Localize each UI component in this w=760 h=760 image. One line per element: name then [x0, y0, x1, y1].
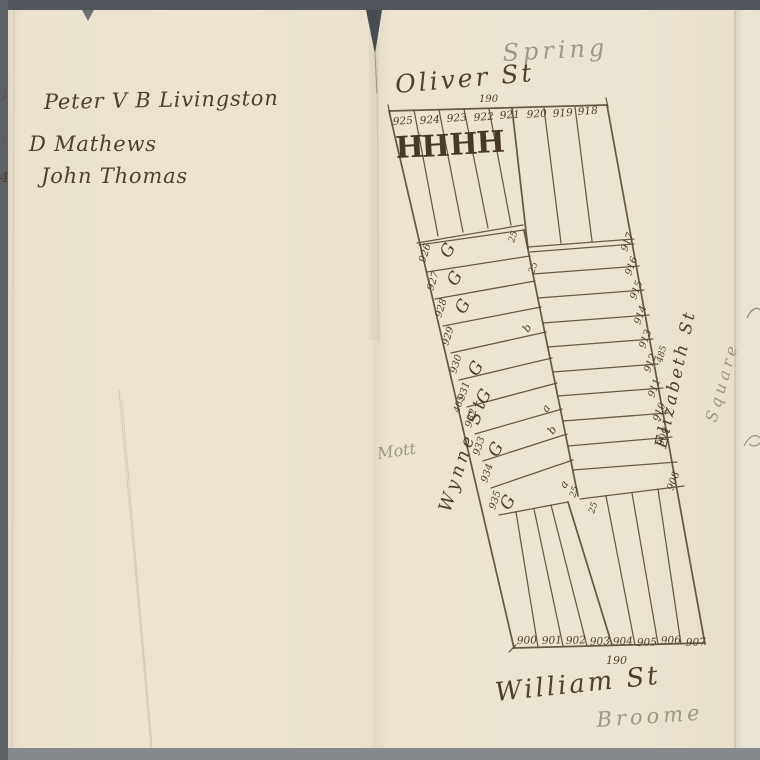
- name-entry: Peter V B Livingston: [43, 86, 279, 114]
- cut-off-writing: [744, 308, 760, 446]
- block-right-edge: [607, 105, 705, 644]
- street-label-wynne: Wynne St: [435, 394, 492, 514]
- fold-notch-tear: [366, 10, 382, 54]
- lot-number: 903: [590, 635, 611, 648]
- dimension-25: 25: [587, 501, 600, 516]
- lot-line: [427, 256, 530, 272]
- cut-off-mark: [1, 90, 5, 101]
- manuscript-artwork: Peter V B Livingston D Mathews John Thom…: [0, 0, 760, 760]
- lot-line: [573, 462, 677, 470]
- lot-letter: b: [520, 321, 535, 334]
- lot-number: 906: [661, 634, 682, 647]
- lot-line: [632, 493, 658, 644]
- left-page-crease-shadow: [122, 400, 152, 746]
- lot-number: 928: [433, 297, 449, 319]
- lot-letter: a: [539, 402, 553, 415]
- scanned-manuscript-map: Peter V B Livingston D Mathews John Thom…: [0, 0, 760, 760]
- lot-letter-g: G: [436, 240, 460, 262]
- lot-letter: b: [545, 423, 560, 436]
- dimension-right-485: 485: [655, 344, 669, 364]
- left-page-crease: [119, 390, 151, 748]
- dimension-top-190: 190: [479, 94, 499, 105]
- lot-number: 921: [499, 109, 520, 122]
- lot-number: 934: [479, 462, 495, 484]
- margin-number: 4: [0, 170, 9, 186]
- lot-number: 920: [526, 108, 547, 121]
- lot-line: [544, 108, 561, 243]
- lot-letter: a: [557, 478, 571, 491]
- bottom-block-grid: [516, 486, 684, 647]
- house-letters: H H H H: [395, 125, 506, 166]
- lot-number: 907: [686, 636, 707, 649]
- street-label-oliver: Oliver St: [394, 58, 535, 99]
- cut-off-stroke: [747, 308, 760, 318]
- lot-number: 900: [517, 634, 538, 647]
- lot-line: [551, 505, 587, 646]
- lot-line: [451, 332, 546, 353]
- lot-number: 930: [448, 353, 465, 375]
- name-entry: John Thomas: [37, 164, 188, 188]
- street-label-william: William St: [494, 661, 662, 708]
- lot-letter-g: G: [464, 358, 488, 380]
- lot-number: 902: [566, 634, 587, 647]
- left-page-top-tear: [82, 10, 94, 21]
- lot-number: 922: [473, 111, 494, 124]
- lot-line: [575, 107, 592, 241]
- lot-number: 925: [392, 115, 413, 128]
- house-letter-h: H: [476, 125, 506, 161]
- dimension-left-485: 485: [452, 394, 467, 415]
- lot-number: 927: [425, 270, 442, 292]
- house-letter-h: H: [449, 127, 479, 163]
- name-entry: D Mathews: [28, 132, 157, 156]
- street-label-mott: Mott: [375, 439, 418, 463]
- top-block-center-divider: [512, 108, 528, 249]
- house-letter-h: H: [421, 129, 451, 165]
- lot-number: 919: [552, 107, 573, 120]
- lot-number: 901: [542, 634, 562, 647]
- lot-line: [534, 509, 563, 646]
- street-label-broome: Broome: [595, 701, 705, 732]
- lot-number: 923: [446, 112, 467, 125]
- interior-letters: b a b a: [520, 321, 571, 490]
- lot-letter-g: G: [484, 439, 508, 461]
- lot-number: 929: [440, 325, 457, 347]
- name-list: Peter V B Livingston D Mathews John Thom…: [0, 86, 279, 188]
- cut-off-mark: [1, 134, 5, 145]
- label-square: Square: [702, 340, 743, 424]
- left-page-edge-line: [12, 10, 14, 748]
- lot-line: [516, 512, 538, 647]
- block-left-edge: [389, 111, 514, 648]
- dimension-bottom-190: 190: [606, 654, 627, 667]
- lot-number: 904: [613, 635, 633, 648]
- lot-letter-g: G: [451, 296, 475, 318]
- lot-number: 908: [665, 470, 682, 492]
- lot-letter-g: G: [443, 268, 467, 290]
- lot-line: [606, 496, 635, 645]
- block-top-edge: [389, 105, 607, 111]
- lot-number: 918: [577, 105, 598, 118]
- cut-off-stroke: [744, 436, 760, 446]
- lot-line: [658, 489, 681, 644]
- bottom-block-center-divider: [568, 502, 612, 645]
- lot-number: 924: [419, 114, 440, 127]
- lot-number: 905: [637, 636, 658, 649]
